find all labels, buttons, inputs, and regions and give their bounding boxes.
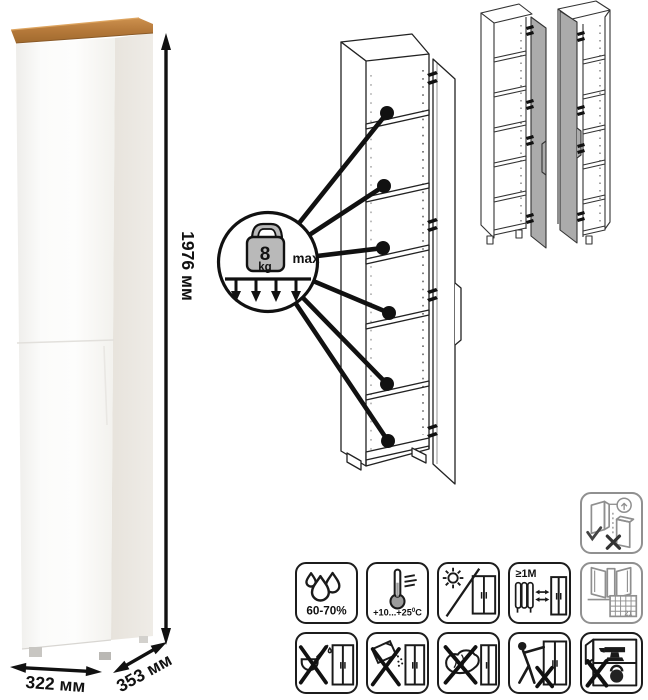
water-drops-glyph: 60-70% xyxy=(297,564,356,622)
distance-label: ≥1M xyxy=(516,568,537,580)
person-dragging-x-glyph xyxy=(510,634,569,692)
open-door xyxy=(433,59,455,484)
arrowhead-up xyxy=(161,33,171,50)
variant-right-panel xyxy=(605,10,610,229)
powder-box-x-glyph xyxy=(368,634,427,692)
humidity-icon: 60-70% xyxy=(295,562,358,624)
calendar-glyph: 21 xyxy=(610,596,636,618)
bottom-board xyxy=(583,226,605,235)
cabinet-foot xyxy=(99,652,111,660)
radiator-distance-glyph: ≥1M xyxy=(510,564,569,622)
variant-left-panel xyxy=(481,13,494,238)
window-calendar-glyph: 21 xyxy=(582,564,641,622)
shelf xyxy=(494,86,526,97)
sun-rays xyxy=(443,568,464,589)
product-infographic-canvas: 1976 мм 322 мм 353 мм xyxy=(0,0,648,700)
shelf xyxy=(366,310,429,329)
heat-lines xyxy=(405,575,417,586)
no-harsh-sponge-icon xyxy=(437,632,500,694)
sun-slash-glyph xyxy=(439,564,498,622)
no-abrasive-powder-icon xyxy=(366,632,429,694)
shelf xyxy=(583,160,605,169)
arrowhead-right xyxy=(86,666,102,676)
door-variant-left-hinge xyxy=(558,1,610,244)
height-dimension: 1976 мм xyxy=(161,33,198,645)
powder-dots xyxy=(397,655,403,666)
height-label: 1976 мм xyxy=(178,231,198,301)
person-glyph xyxy=(518,642,544,683)
weight-icon: 8 kg xyxy=(247,224,284,274)
no-wet-cleaning-icon xyxy=(295,632,358,694)
anchor-to-wall-glyph xyxy=(582,494,641,552)
slash-line xyxy=(447,569,480,617)
load-unit: kg xyxy=(258,262,271,274)
shelf xyxy=(366,381,429,400)
calendar-day-label: 21 xyxy=(624,610,632,617)
ventilation-calendar-icon: 21 xyxy=(580,562,643,624)
radiator-glyph xyxy=(516,583,533,613)
x-mark xyxy=(373,649,399,685)
no-dragging-icon xyxy=(508,632,571,694)
x-mark xyxy=(607,536,619,548)
base-foot xyxy=(487,236,493,244)
cabinet-side-panel xyxy=(111,33,153,640)
temperature-icon: +10...+250C xyxy=(366,562,429,624)
anchor-to-wall-icon xyxy=(580,492,643,554)
load-qualifier: max xyxy=(292,251,320,266)
shelf xyxy=(583,90,605,99)
base-foot xyxy=(586,236,592,244)
thermometer-glyph: +10...+250C xyxy=(368,564,427,622)
door-variant-right-hinge xyxy=(481,4,546,248)
anvil-weight-x-glyph xyxy=(582,634,641,692)
width-label: 322 мм xyxy=(25,672,86,696)
cabinet-foot xyxy=(29,647,42,657)
shelf xyxy=(583,195,605,204)
anvil-glyph xyxy=(599,647,625,661)
gray-door xyxy=(531,17,546,248)
temperature-label: +10...+250C xyxy=(373,607,422,617)
no-direct-sunlight-icon xyxy=(437,562,500,624)
dipper-x-glyph xyxy=(297,634,356,692)
x-mark xyxy=(588,661,607,685)
heat-distance-icon: ≥1M xyxy=(508,562,571,624)
shelf xyxy=(494,191,526,202)
shelf-load-callout: 8 kg max xyxy=(219,213,320,312)
open-cabinet-diagram xyxy=(341,34,461,484)
distance-arrows xyxy=(535,590,549,602)
depth-dimension: 353 мм xyxy=(113,642,175,696)
cabinet-front-door xyxy=(16,38,115,649)
x-mark xyxy=(301,647,326,683)
shelf xyxy=(583,55,605,64)
arrowhead-left xyxy=(10,663,26,673)
no-overload-icon xyxy=(580,632,643,694)
kettlebell-glyph xyxy=(610,666,623,683)
cabinet-foot xyxy=(139,636,148,643)
base-foot xyxy=(516,230,522,238)
gray-door xyxy=(560,11,577,243)
shelf xyxy=(583,125,605,134)
sponge-hand-x-glyph xyxy=(439,634,498,692)
humidity-label: 60-70% xyxy=(306,605,347,618)
product-photo xyxy=(11,18,153,660)
door-handle-recess xyxy=(455,283,461,345)
width-dimension: 322 мм xyxy=(10,663,102,696)
